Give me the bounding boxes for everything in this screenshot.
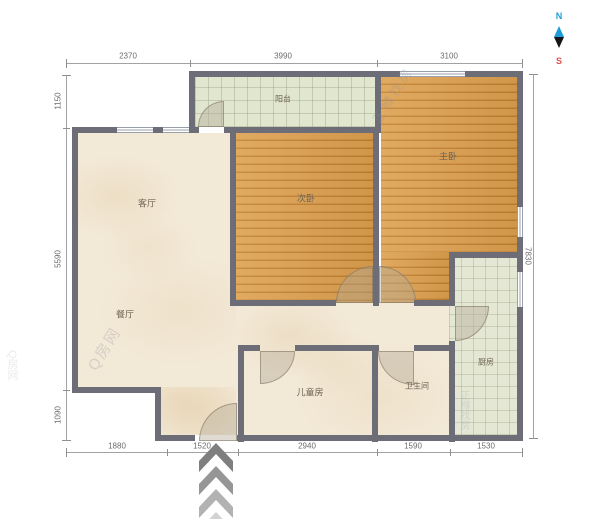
watermark: Q房网 xyxy=(4,350,20,381)
dim-tick xyxy=(522,59,523,68)
dim-bottom-1: 1880 xyxy=(108,442,126,451)
entry-direction-arrows-icon xyxy=(198,441,234,519)
dim-tick xyxy=(66,448,67,457)
dim-bottom-5: 1530 xyxy=(477,442,495,451)
kitchen-floor xyxy=(449,258,517,435)
living-dining-floor xyxy=(78,133,236,387)
dim-right-1: 7830 xyxy=(524,247,533,265)
dim-left-1: 1150 xyxy=(54,92,63,109)
wall-childroom-bathroom-divider xyxy=(372,351,378,442)
floorplan-canvas: 客厅 餐厅 阳台 次卧 主卧 儿童房 卫生间 厨房 2370 3990 3100… xyxy=(0,0,600,519)
kitchen-window xyxy=(517,272,523,307)
living-window-1 xyxy=(117,127,153,133)
dim-top-1: 2370 xyxy=(119,52,137,61)
dim-bottom-4: 1590 xyxy=(404,442,422,451)
wall-second-bedroom-bottom xyxy=(230,300,336,306)
dim-tick xyxy=(63,128,70,129)
master-bedroom-floor xyxy=(381,77,517,252)
wall-balcony-bottom xyxy=(224,127,381,133)
dim-top-2: 3990 xyxy=(274,52,292,61)
wall-kitchen-left-upper xyxy=(449,252,455,306)
dim-tick xyxy=(190,60,191,67)
dim-tick xyxy=(238,449,239,456)
dim-tick xyxy=(377,60,378,67)
wall-childroom-left xyxy=(238,345,244,442)
dim-left-2: 5590 xyxy=(54,250,63,268)
room-label-kitchen: 厨房 xyxy=(478,357,494,368)
dim-tick xyxy=(167,449,168,456)
dim-tick xyxy=(62,440,71,441)
wall-balcony-master-divider xyxy=(375,71,381,133)
master-bedroom-side-window xyxy=(517,207,523,237)
dim-left-3: 1090 xyxy=(54,406,63,424)
wall-step-vertical xyxy=(155,387,161,441)
dim-tick xyxy=(450,449,451,456)
dim-tick xyxy=(62,75,71,76)
dim-top-3: 3100 xyxy=(440,52,458,61)
dimension-line-right xyxy=(533,74,534,438)
room-label-second-bedroom: 次卧 xyxy=(297,192,315,205)
wall-kitchen-left-lower xyxy=(449,341,455,442)
living-window-2 xyxy=(163,127,189,133)
room-label-children-room: 儿童房 xyxy=(296,386,323,399)
compass-needle-icon xyxy=(554,26,564,48)
wall-bathroom-top xyxy=(414,345,449,351)
dim-tick xyxy=(66,59,67,68)
wall-left-exterior xyxy=(72,127,78,393)
master-bedroom-window xyxy=(400,71,465,77)
compass: N S xyxy=(545,6,573,68)
room-label-bathroom: 卫生间 xyxy=(405,381,429,392)
room-label-balcony: 阳台 xyxy=(275,94,291,105)
wall-balcony-left xyxy=(189,71,195,133)
wall-bottom-left xyxy=(155,435,195,441)
dim-tick xyxy=(522,448,523,457)
wall-top-exterior xyxy=(189,71,523,77)
wall-bedrooms-divider xyxy=(373,133,379,306)
wall-step-horizontal xyxy=(72,387,161,393)
room-label-master-bedroom: 主卧 xyxy=(439,150,457,163)
wall-living-bedroom-divider xyxy=(230,133,236,306)
dim-bottom-3: 2940 xyxy=(298,442,316,451)
compass-south-label: S xyxy=(556,56,562,66)
room-label-dining: 餐厅 xyxy=(116,308,134,321)
dim-tick xyxy=(63,390,70,391)
dimension-line-left xyxy=(66,75,67,440)
dimension-line-top xyxy=(66,63,522,64)
wall-bottom-right xyxy=(237,435,523,441)
compass-north-label: N xyxy=(556,11,563,21)
dim-tick xyxy=(529,74,538,75)
dimension-line-bottom xyxy=(66,452,522,453)
dim-tick xyxy=(377,449,378,456)
wall-childroom-top-b xyxy=(295,345,379,351)
dim-tick xyxy=(529,438,538,439)
room-label-living: 客厅 xyxy=(138,197,156,210)
wall-kitchen-top xyxy=(449,252,523,258)
